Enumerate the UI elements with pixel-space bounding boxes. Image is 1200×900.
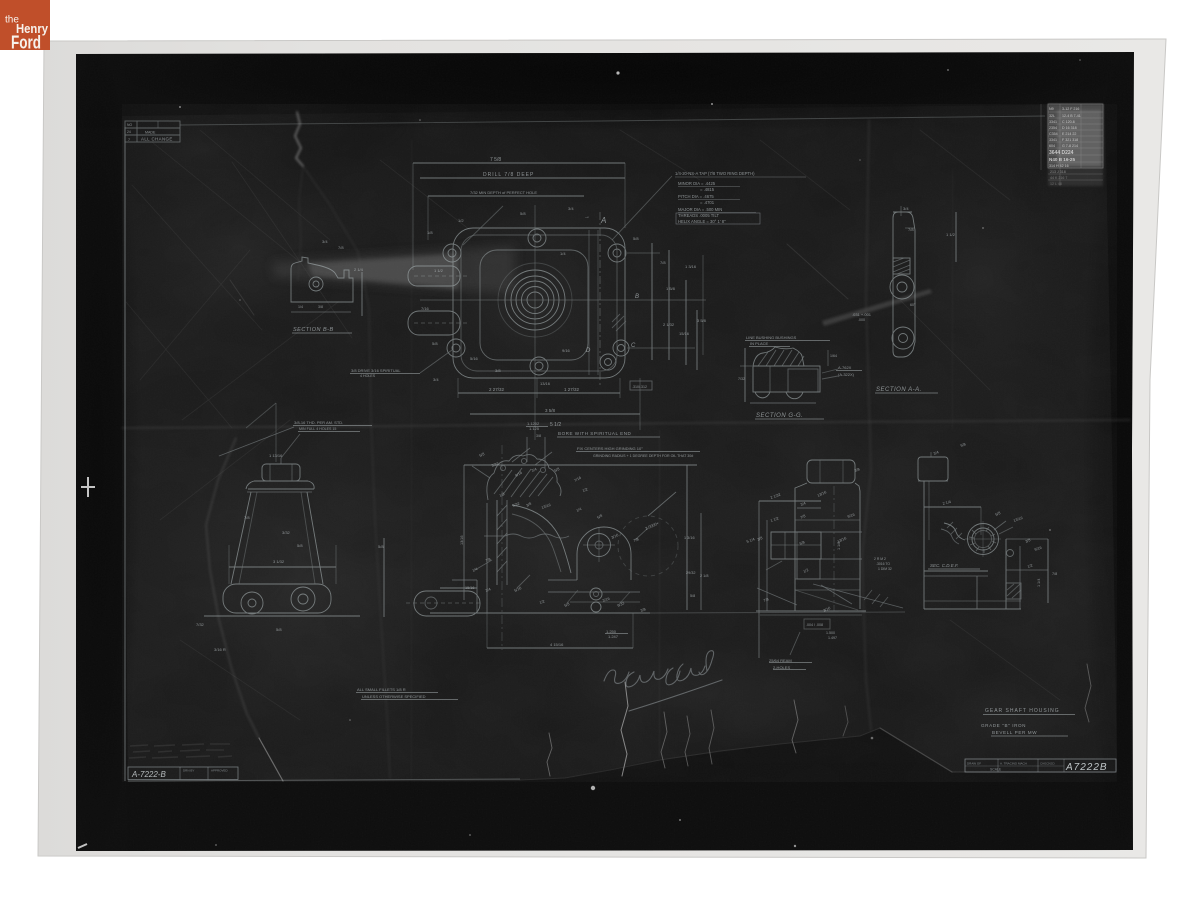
svg-text:1 13/16: 1 13/16: [269, 453, 283, 458]
svg-text:HELIX ANGLE = 30° 1' 8": HELIX ANGLE = 30° 1' 8": [678, 219, 726, 224]
svg-text:3/8: 3/8: [495, 368, 501, 373]
svg-text:LINE BUSHING BUSHINGS: LINE BUSHING BUSHINGS: [746, 335, 797, 340]
svg-text:15/16: 15/16: [679, 331, 690, 336]
svg-text:7/8: 7/8: [1052, 572, 1057, 576]
svg-text:3/4: 3/4: [568, 206, 574, 211]
svg-text:MIN FULL 4 HOLES 15: MIN FULL 4 HOLES 15: [299, 427, 336, 431]
svg-text:ALL SMALL FILLETS 1/8 R: ALL SMALL FILLETS 1/8 R: [357, 687, 406, 692]
svg-text:7/16: 7/16: [421, 306, 430, 311]
svg-text:BEVELL PER MW: BEVELL PER MW: [992, 730, 1037, 735]
svg-text:7/32: 7/32: [738, 377, 745, 381]
svg-text:B: B: [635, 294, 639, 300]
svg-text:12 L 48: 12 L 48: [1050, 182, 1062, 186]
svg-text:.000: .000: [858, 318, 865, 322]
svg-text:7/8: 7/8: [338, 245, 344, 250]
svg-text:4 15/16: 4 15/16: [550, 642, 564, 647]
svg-text:F 321 318: F 321 318: [1062, 138, 1078, 142]
svg-text:60°: 60°: [910, 303, 916, 307]
svg-text:9/16: 9/16: [562, 348, 571, 353]
svg-text:2 1/8: 2 1/8: [700, 574, 708, 578]
svg-text:1 1/2: 1 1/2: [946, 232, 956, 237]
svg-text:ALL CHANGE: ALL CHANGE: [141, 137, 173, 142]
svg-text:A. TRACING MACH: A. TRACING MACH: [1000, 762, 1027, 766]
svg-text:3/4: 3/4: [433, 377, 439, 382]
svg-text:3/32: 3/32: [282, 530, 291, 535]
svg-text:7 5/8: 7 5/8: [490, 157, 501, 163]
svg-text:NO: NO: [127, 123, 132, 127]
svg-text:1.497: 1.497: [828, 636, 837, 640]
svg-text:Ford: Ford: [11, 33, 41, 53]
svg-text:1 DIM 32: 1 DIM 32: [878, 567, 892, 571]
svg-text:→: →: [584, 214, 590, 220]
svg-text:N9: N9: [1049, 107, 1054, 111]
svg-text:THREADS .0005 TILT: THREADS .0005 TILT: [678, 213, 719, 218]
svg-text:DRN BY: DRN BY: [183, 769, 194, 773]
svg-text:.310/.312: .310/.312: [632, 385, 647, 389]
svg-text:5/8: 5/8: [432, 341, 438, 346]
svg-text:MADE: MADE: [145, 131, 156, 135]
svg-text:5/8: 5/8: [690, 594, 695, 598]
svg-text:(A-322X): (A-322X): [838, 372, 855, 377]
svg-text:7/8: 7/8: [660, 260, 666, 265]
svg-text:1 5/8: 1 5/8: [666, 286, 676, 291]
svg-text:A: A: [600, 216, 606, 225]
svg-text:1 1/2: 1 1/2: [434, 268, 444, 273]
svg-text:5 1/2: 5 1/2: [550, 422, 561, 428]
svg-text:3-12 F 216: 3-12 F 216: [1062, 107, 1079, 111]
svg-text:3/8: 3/8: [536, 434, 541, 438]
svg-text:SECTION G-G.: SECTION G-G.: [756, 413, 803, 419]
svg-text:5/8: 5/8: [297, 543, 303, 548]
svg-text:A-762X: A-762X: [838, 365, 852, 370]
svg-text:FIX CENTERS HIGH GRINDING 10°: FIX CENTERS HIGH GRINDING 10°: [577, 446, 643, 451]
svg-text:DRILL 7/8 DEEP: DRILL 7/8 DEEP: [483, 172, 534, 178]
svg-text:1 1/8: 1 1/8: [837, 542, 841, 550]
svg-text:MAJOR DIA = .500 MIN: MAJOR DIA = .500 MIN: [678, 207, 722, 212]
svg-text:SCALE: SCALE: [990, 768, 1002, 772]
svg-text:3/8-16 THD. PER AM. STD.: 3/8-16 THD. PER AM. STD.: [294, 420, 343, 425]
svg-text:SECTION B-B: SECTION B-B: [293, 327, 334, 333]
svg-text:1 3/16: 1 3/16: [685, 264, 697, 269]
svg-text:7/8: 7/8: [244, 515, 250, 520]
svg-text:1.500: 1.500: [826, 631, 835, 635]
svg-text:1/8: 1/8: [427, 230, 433, 235]
svg-text:3/4: 3/4: [322, 239, 328, 244]
svg-text:3644 D224: 3644 D224: [1049, 150, 1074, 156]
svg-text:3/16 R: 3/16 R: [214, 647, 226, 652]
svg-text:SEC. C.D.E.F.: SEC. C.D.E.F.: [930, 563, 958, 568]
svg-text:7/8: 7/8: [908, 227, 914, 232]
svg-text:44 K 216 7: 44 K 216 7: [1050, 176, 1067, 180]
svg-text:3341: 3341: [1049, 138, 1057, 142]
svg-text:A7222B: A7222B: [1065, 762, 1108, 773]
svg-text:= .4701: = .4701: [700, 200, 715, 205]
svg-text:3 5/8: 3 5/8: [697, 318, 707, 323]
svg-text:1 27/32: 1 27/32: [564, 387, 580, 392]
svg-text:C 120-6: C 120-6: [1062, 120, 1075, 124]
svg-text:C354: C354: [1049, 132, 1058, 136]
svg-text:5/8: 5/8: [378, 544, 384, 549]
svg-text:7/32 MIN DEPTH of PERFECT HOLE: 7/32 MIN DEPTH of PERFECT HOLE: [470, 190, 537, 195]
svg-text:BORE WITH SPIRITUAL END: BORE WITH SPIRITUAL END: [558, 431, 632, 436]
svg-text:.3016 TO: .3016 TO: [876, 562, 890, 566]
svg-text:3 1/32: 3 1/32: [273, 559, 285, 564]
svg-text:.004 / .008: .004 / .008: [806, 623, 823, 627]
svg-text:1 1/4: 1 1/4: [1037, 579, 1041, 587]
svg-text:13/16: 13/16: [540, 381, 551, 386]
svg-text:2 1/32: 2 1/32: [663, 322, 675, 327]
svg-text:A-7222-B: A-7222-B: [131, 770, 166, 779]
svg-text:1/4-20-NS-A TAP (7/8 TWO RING: 1/4-20-NS-A TAP (7/8 TWO RING DEPTH): [675, 171, 755, 176]
svg-text:3/8 DRIVE 3/16 SPIRITUAL: 3/8 DRIVE 3/16 SPIRITUAL: [351, 368, 401, 373]
svg-text:DRAW OF: DRAW OF: [967, 762, 981, 766]
svg-text:GEAR SHAFT HOUSING: GEAR SHAFT HOUSING: [985, 708, 1060, 714]
svg-text:CHECKED: CHECKED: [1040, 762, 1056, 766]
svg-text:IN PLACE: IN PLACE: [750, 341, 769, 346]
svg-text:1 3/16: 1 3/16: [684, 536, 695, 540]
svg-text:15/16: 15/16: [465, 586, 475, 590]
svg-text:213 J 318: 213 J 318: [1050, 170, 1066, 174]
svg-text:24: 24: [127, 130, 131, 134]
svg-text:1.247: 1.247: [608, 634, 619, 639]
svg-text:1/4: 1/4: [298, 305, 303, 309]
svg-text:APPROVED: APPROVED: [211, 769, 229, 773]
svg-text:.031 +.001: .031 +.001: [852, 312, 872, 317]
svg-text:= .4815: = .4815: [700, 187, 715, 192]
svg-text:3/4: 3/4: [903, 206, 909, 211]
svg-text:D 16 318: D 16 318: [1062, 126, 1077, 130]
svg-text:PITCH DIA = .4675: PITCH DIA = .4675: [678, 194, 714, 199]
svg-text:D: D: [586, 348, 591, 354]
svg-text:5/16: 5/16: [470, 356, 479, 361]
svg-text:UNLESS OTHERWISE SPECIFIED: UNLESS OTHERWISE SPECIFIED: [362, 694, 426, 699]
svg-text:7: 7: [128, 138, 130, 142]
svg-text:SECTION A-A.: SECTION A-A.: [876, 387, 922, 393]
svg-text:1/64: 1/64: [830, 354, 837, 358]
svg-text:3 5/8: 3 5/8: [545, 408, 556, 413]
svg-text:7/32: 7/32: [196, 622, 205, 627]
svg-text:MINOR DIA = .4425: MINOR DIA = .4425: [678, 181, 716, 186]
svg-text:314 H 42 16: 314 H 42 16: [1049, 164, 1069, 168]
svg-text:2 1/4: 2 1/4: [354, 267, 364, 272]
svg-text:GRINDING RADIUS + 1 DEGREE DE: GRINDING RADIUS + 1 DEGREE DEPTH FOR OIL…: [593, 454, 693, 458]
svg-text:5/8: 5/8: [520, 211, 526, 216]
svg-text:29/32: 29/32: [686, 571, 696, 575]
svg-text:E 214 22: E 214 22: [1062, 132, 1076, 136]
svg-text:2 R M 2: 2 R M 2: [874, 557, 886, 561]
svg-text:G 7-8 214: G 7-8 214: [1062, 144, 1078, 148]
svg-text:13/16: 13/16: [460, 535, 464, 545]
svg-text:2 27/32: 2 27/32: [489, 387, 505, 392]
svg-text:1/4: 1/4: [560, 251, 566, 256]
svg-text:2354: 2354: [1049, 126, 1057, 130]
svg-text:3341: 3341: [1049, 120, 1057, 124]
svg-text:5/8: 5/8: [276, 627, 282, 632]
svg-text:604: 604: [1049, 144, 1055, 148]
svg-text:12-4 B 7-41: 12-4 B 7-41: [1062, 114, 1081, 118]
svg-text:5/8: 5/8: [633, 236, 639, 241]
svg-text:C: C: [631, 343, 636, 349]
svg-text:4 HOLES: 4 HOLES: [360, 374, 376, 378]
svg-text:1/2: 1/2: [458, 218, 464, 223]
svg-text:3/8: 3/8: [318, 305, 323, 309]
svg-text:N40 B 16-25: N40 B 16-25: [1049, 157, 1075, 162]
svg-text:32L: 32L: [1049, 114, 1055, 118]
svg-text:GRADE "B" IRON: GRADE "B" IRON: [981, 723, 1026, 728]
